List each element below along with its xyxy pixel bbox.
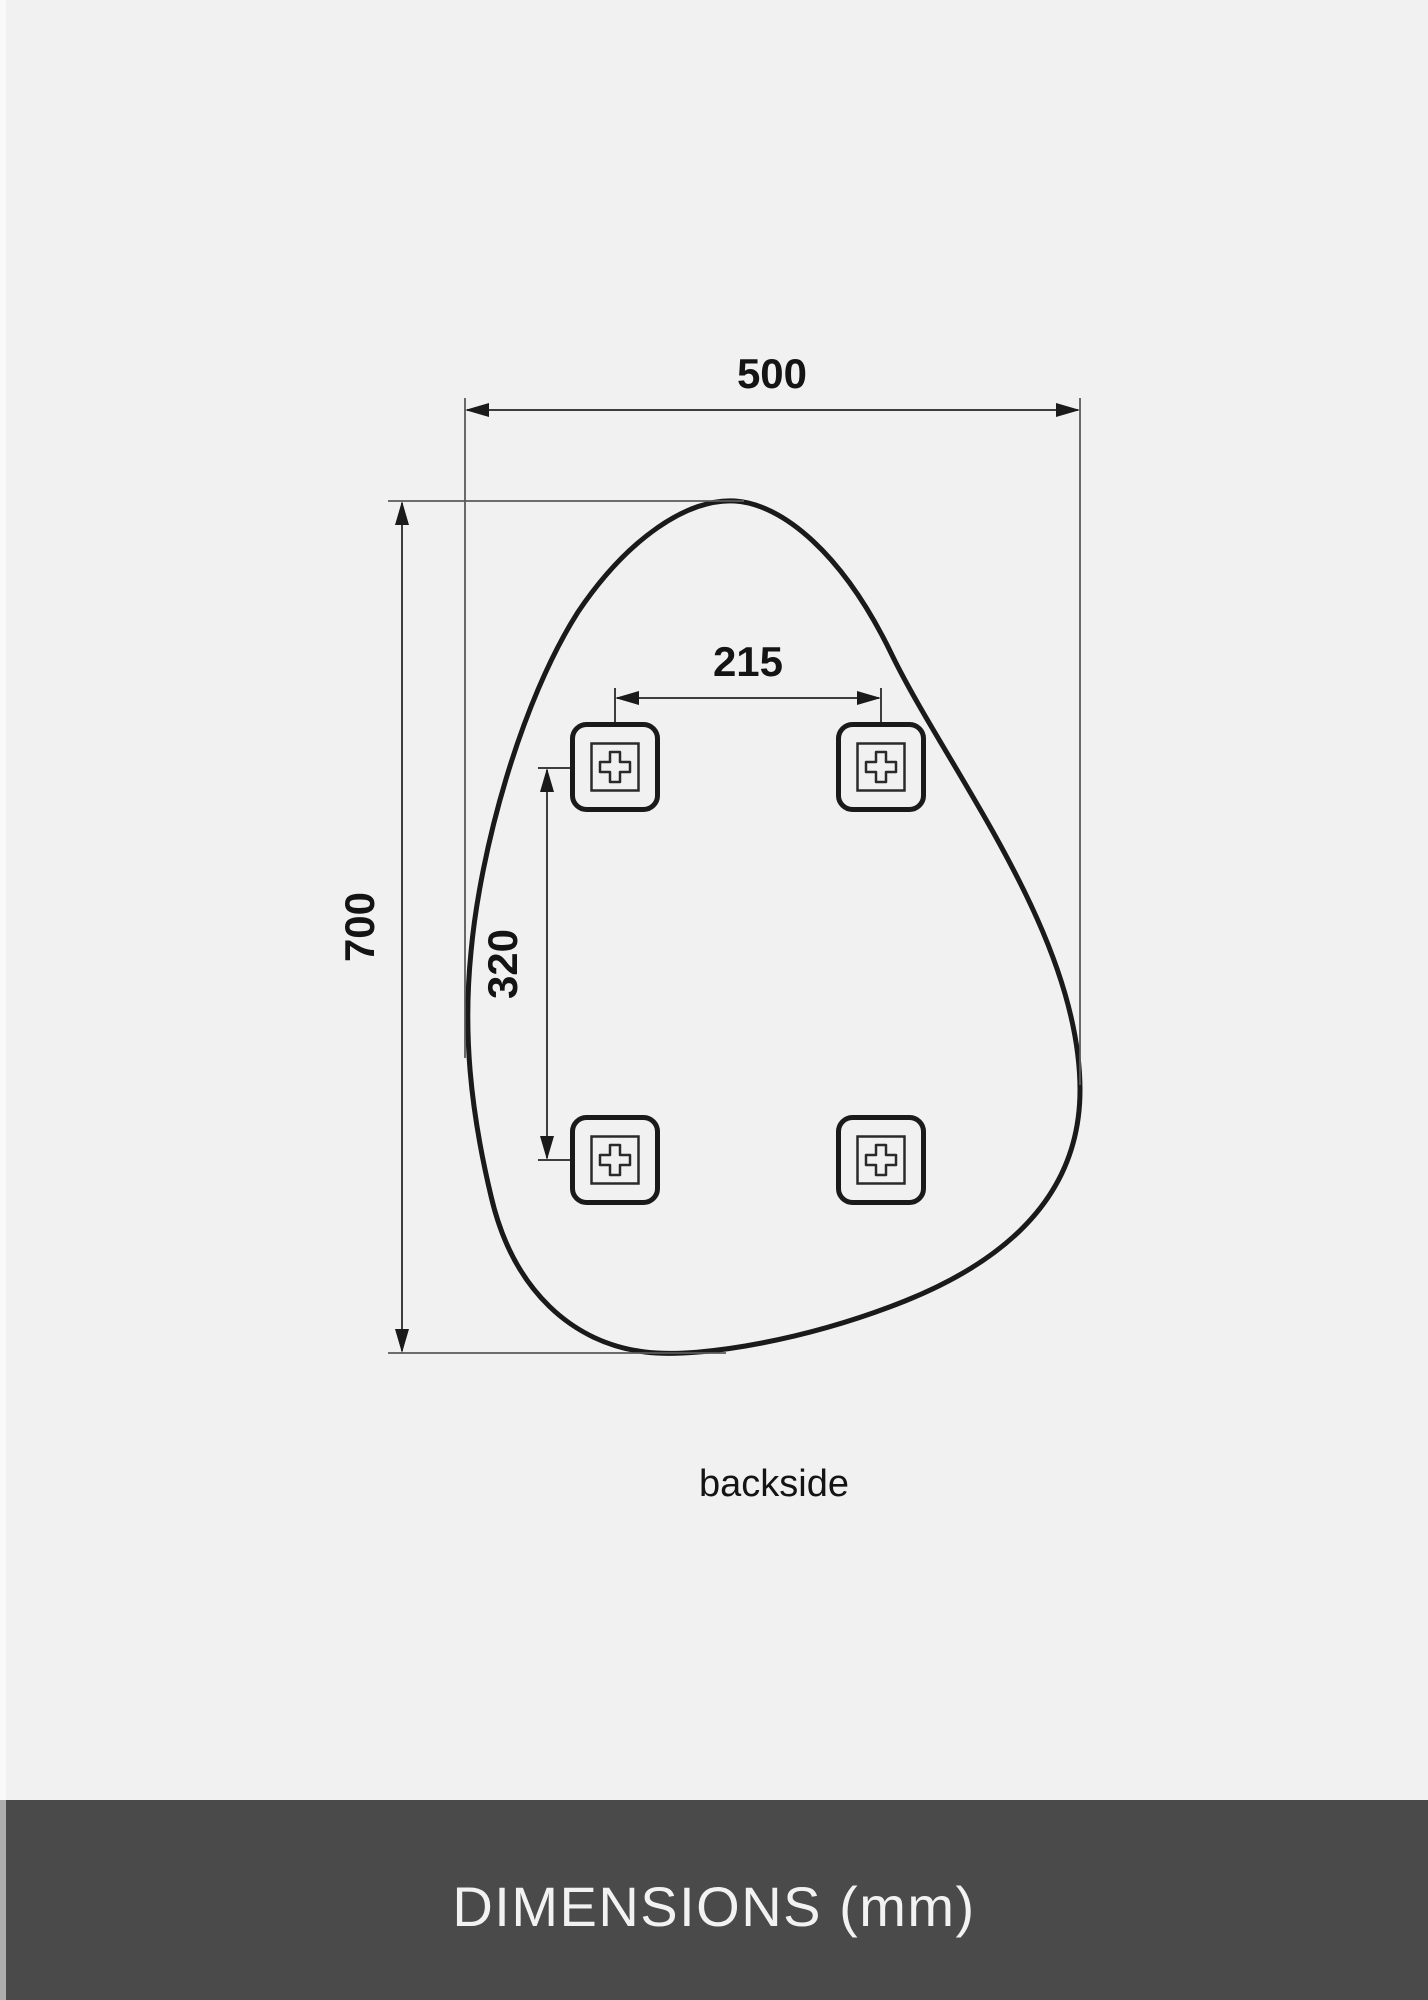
dimension-overall-width: 500	[465, 350, 1080, 1085]
bracket-spacing-horizontal-label: 215	[713, 638, 783, 685]
bracket-outer-square	[573, 725, 658, 810]
bracket-inner-square	[592, 1137, 639, 1184]
mounting-bracket-bottom-right	[839, 1118, 924, 1203]
arrowhead-up-icon	[540, 768, 554, 792]
footer-title: DIMENSIONS (mm)	[452, 1874, 975, 1939]
technical-drawing: 500 700 215 320	[0, 0, 1428, 1800]
arrowhead-down-icon	[395, 1329, 409, 1353]
width-dimension-label: 500	[737, 350, 807, 397]
arrowhead-left-icon	[615, 691, 639, 705]
screw-plus-icon	[866, 1145, 896, 1175]
bracket-inner-square	[858, 1137, 905, 1184]
page-edge-highlight	[0, 0, 6, 2000]
screw-plus-icon	[600, 752, 630, 782]
arrowhead-down-icon	[540, 1136, 554, 1160]
caption-backside: backside	[699, 1463, 849, 1505]
height-dimension-label: 700	[336, 892, 383, 962]
bracket-inner-square	[592, 744, 639, 791]
mirror-outline	[468, 501, 1080, 1353]
bracket-outer-square	[573, 1118, 658, 1203]
mounting-bracket-top-left	[573, 725, 658, 810]
bracket-spacing-vertical-label: 320	[479, 929, 526, 999]
bracket-inner-square	[858, 744, 905, 791]
screw-plus-icon	[600, 1145, 630, 1175]
dimension-bracket-spacing-horizontal: 215	[615, 638, 881, 723]
arrowhead-up-icon	[395, 501, 409, 525]
dimension-overall-height: 700	[336, 501, 744, 1353]
footer-bar: DIMENSIONS (mm)	[0, 1800, 1428, 2000]
arrowhead-right-icon	[857, 691, 881, 705]
arrowhead-left-icon	[465, 403, 489, 417]
bracket-outer-square	[839, 1118, 924, 1203]
screw-plus-icon	[866, 752, 896, 782]
dimension-sheet: 500 700 215 320	[0, 0, 1428, 2000]
arrowhead-right-icon	[1056, 403, 1080, 417]
mounting-bracket-top-right	[839, 725, 924, 810]
bracket-outer-square	[839, 725, 924, 810]
mounting-bracket-bottom-left	[573, 1118, 658, 1203]
